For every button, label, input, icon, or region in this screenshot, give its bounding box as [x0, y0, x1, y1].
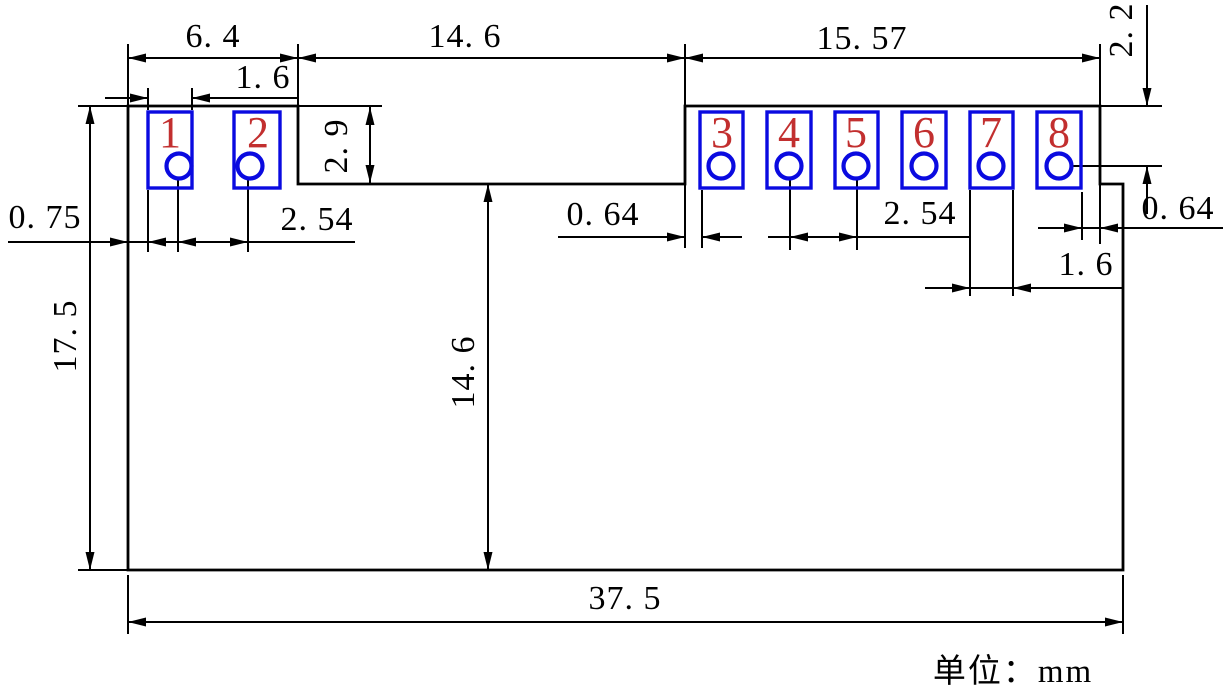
pad-3-hole	[709, 154, 734, 179]
pad-1-number: 1	[159, 111, 181, 155]
dim-pad-strip-height: 2. 9	[320, 119, 354, 174]
pad-1-hole	[167, 154, 192, 179]
pad-6-number: 6	[913, 111, 935, 155]
dim-left-edge-to-pad1: 0. 75	[9, 201, 82, 235]
pad-4-number: 4	[778, 111, 800, 155]
dim-body-height: 17. 5	[49, 300, 83, 373]
dim-pad7-width: 1. 6	[1059, 248, 1114, 282]
pad-2-hole	[238, 154, 263, 179]
dim-notch-depth: 14. 6	[447, 336, 481, 409]
body-outline	[128, 106, 1123, 570]
pad-5-number: 5	[845, 111, 867, 155]
dim-pitch-right: 2. 54	[884, 197, 957, 231]
pad-3-number: 3	[711, 111, 733, 155]
pad-4-hole	[777, 154, 802, 179]
pad-5-hole	[844, 154, 869, 179]
dim-pitch-left: 2. 54	[281, 203, 354, 237]
dim-pad8-to-edge: 0. 64	[1142, 192, 1215, 226]
dim-section-left-width: 6. 4	[186, 20, 241, 54]
dim-pad1-width: 1. 6	[236, 61, 291, 95]
pad-holes	[167, 154, 1072, 179]
pad-8-hole	[1047, 154, 1072, 179]
dim-edge-to-pad3: 0. 64	[567, 198, 640, 232]
pad-2-number: 2	[247, 111, 269, 155]
pad-outlines	[148, 112, 1081, 188]
units-label: 单位：mm	[933, 644, 1093, 692]
dim-notch-width: 14. 6	[429, 20, 502, 54]
dim-pad-center-from-top: 2. 2	[1105, 3, 1139, 58]
dim-body-width: 37. 5	[589, 582, 662, 616]
dimension-lines	[8, 5, 1223, 622]
pad-7-hole	[979, 154, 1004, 179]
dim-section-right-width: 15. 57	[817, 22, 908, 56]
pad-7-number: 7	[980, 111, 1002, 155]
pad-8-number: 8	[1048, 111, 1070, 155]
pad-6-hole	[912, 154, 937, 179]
dimension-drawing: 1 2 3 4 5 6 7 8 6. 4 14. 6 15. 57 1. 6 2…	[0, 0, 1225, 692]
